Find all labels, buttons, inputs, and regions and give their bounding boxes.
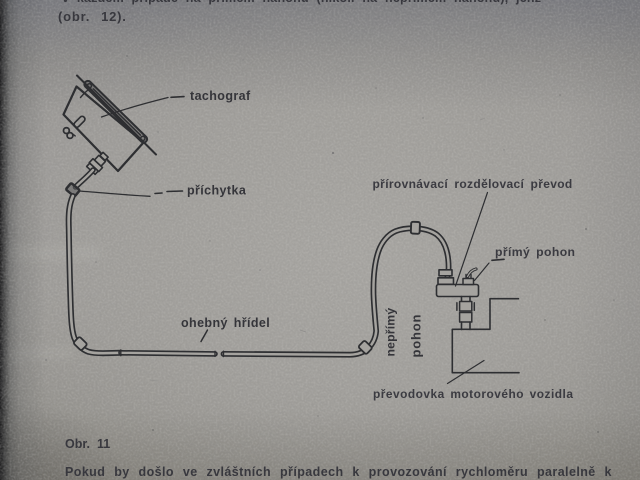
svg-text:pohon: pohon: [409, 314, 424, 358]
svg-text:příchytka: příchytka: [187, 184, 247, 198]
svg-text:převodovka motorového vozidla: převodovka motorového vozidla: [373, 387, 573, 401]
svg-text:přírovnávací rozdělovací převo: přírovnávací rozdělovací převod: [373, 177, 573, 191]
svg-text:přímý pohon: přímý pohon: [495, 245, 575, 259]
svg-text:nepřímý: nepřímý: [384, 308, 398, 357]
svg-text:ohebný hřídel: ohebný hřídel: [181, 316, 270, 330]
svg-text:tachograf: tachograf: [190, 89, 251, 103]
